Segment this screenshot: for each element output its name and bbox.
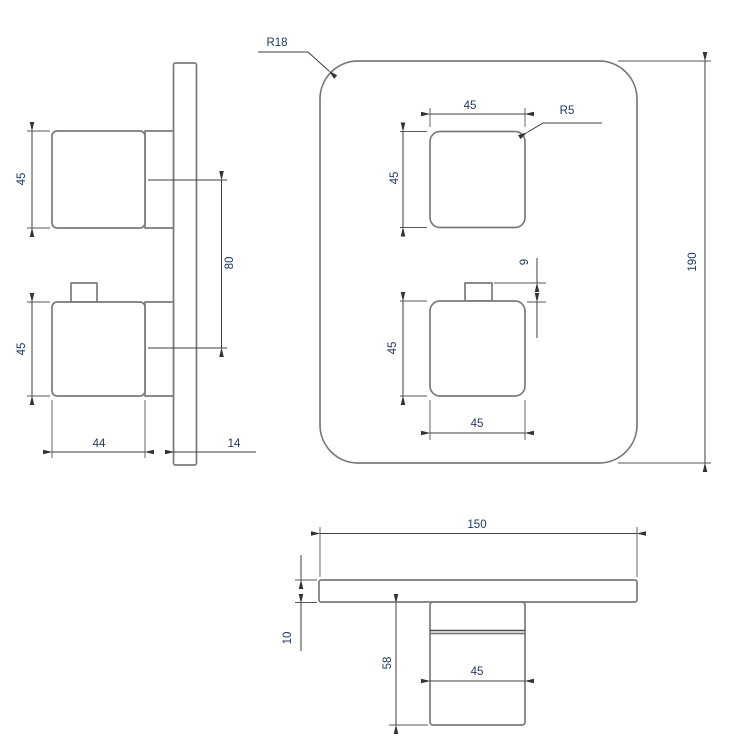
side-handle-bottom-base (145, 302, 174, 396)
dim-label: 14 (228, 438, 241, 450)
dim-label: 9 (519, 259, 531, 265)
dim-bottom-plate-width: 150 (320, 519, 637, 577)
dim-side-handle-bottom-height: 45 (16, 302, 50, 396)
dim-label: 45 (16, 173, 28, 186)
front-handle-bottom (430, 301, 525, 396)
bottom-wall-plate (319, 580, 637, 602)
dim-side-handle-spacing: 80 (222, 180, 237, 348)
valve-trim-drawing: 45 45 80 44 14 (0, 0, 740, 750)
side-view: 45 45 80 44 14 (16, 63, 256, 465)
side-handle-bottom (52, 302, 145, 396)
side-handle-bottom-tab (71, 283, 97, 302)
technical-drawing-page: 45 45 80 44 14 (0, 0, 740, 750)
dim-side-handle-depth: 44 (52, 400, 145, 458)
radius-label: R18 (266, 37, 287, 49)
dim-label: 58 (382, 657, 394, 670)
dim-label: 45 (464, 100, 477, 112)
dim-bottom-handle-projection: 58 (382, 603, 428, 725)
front-handle-top (430, 132, 525, 228)
dim-label: 44 (93, 438, 106, 450)
callout-plate-corner-radius: R18 (258, 37, 329, 71)
dim-side-handle-top-height: 45 (16, 131, 50, 228)
bottom-view: 150 10 58 45 (282, 519, 637, 725)
dim-label: 45 (471, 418, 484, 430)
side-handle-top (52, 131, 145, 228)
dim-label: 150 (467, 519, 486, 531)
radius-label: R5 (560, 105, 575, 117)
dim-label: 45 (389, 172, 401, 185)
dim-label: 190 (687, 252, 699, 271)
front-wall-plate (320, 61, 637, 463)
front-handle-bottom-tab (465, 283, 492, 301)
front-view: R18 R5 45 45 9 (258, 37, 711, 463)
dim-label: 45 (16, 343, 28, 356)
dim-label: 45 (471, 666, 484, 678)
dim-label: 80 (224, 257, 236, 270)
dim-bottom-plate-thickness: 10 (282, 555, 317, 651)
dim-label: 45 (387, 342, 399, 355)
side-wall-plate (174, 63, 197, 465)
bottom-handle (430, 602, 525, 725)
dim-label: 10 (282, 632, 294, 645)
